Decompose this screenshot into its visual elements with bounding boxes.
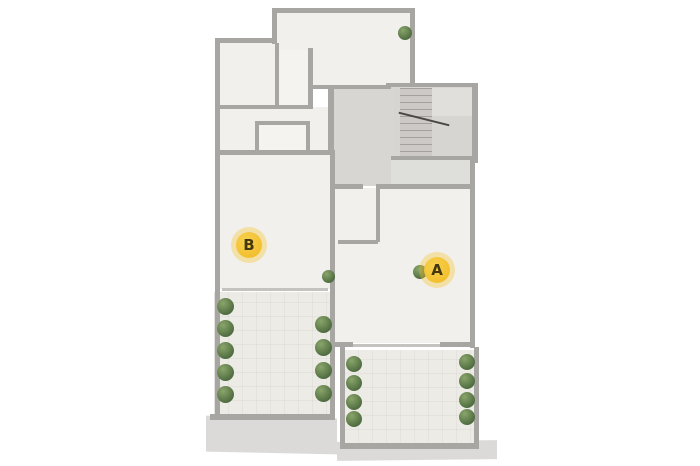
terrace-plant xyxy=(315,339,332,356)
wall xyxy=(215,38,277,43)
wall xyxy=(340,347,345,448)
sliding-glass-door xyxy=(353,344,440,347)
bathroom-b2-floor xyxy=(258,124,307,152)
wall xyxy=(215,150,335,155)
wall xyxy=(440,342,475,347)
terrace-plant xyxy=(346,375,362,391)
terrace-plant xyxy=(346,394,362,410)
stair-landing xyxy=(432,88,472,116)
wall xyxy=(308,48,313,108)
terrace-plant xyxy=(459,409,475,425)
terrace-plant xyxy=(217,342,234,359)
potted-plant xyxy=(398,26,412,40)
unit-b-label: B xyxy=(243,236,254,254)
terrace-plant xyxy=(459,373,475,389)
terrace-a-floor xyxy=(344,350,475,444)
living-a-floor xyxy=(334,188,471,343)
staircase xyxy=(394,88,472,156)
bathroom-top-floor xyxy=(278,50,309,108)
wall xyxy=(255,121,310,125)
bedroom-b-floor xyxy=(218,42,276,108)
wall xyxy=(376,184,475,189)
unit-a-entry-floor xyxy=(391,158,471,186)
wall xyxy=(215,38,220,420)
wall xyxy=(472,83,478,163)
living-b-floor xyxy=(218,154,331,289)
terrace-plant xyxy=(459,354,475,370)
terrace-plant xyxy=(217,320,234,337)
stair-flight xyxy=(400,88,432,156)
terrace-plant xyxy=(217,298,234,315)
wall xyxy=(386,83,477,87)
wall xyxy=(210,414,335,420)
floor-plan-render: B A xyxy=(0,0,700,466)
wall xyxy=(275,43,279,108)
unit-a-label: A xyxy=(431,261,443,279)
unit-a-marker[interactable]: A xyxy=(424,257,450,283)
wall xyxy=(410,8,415,87)
terrace-plant xyxy=(217,364,234,381)
terrace-plant xyxy=(217,386,234,403)
potted-plant xyxy=(322,270,335,283)
wall xyxy=(330,150,335,420)
wall xyxy=(275,105,313,109)
terrace-plant xyxy=(346,411,362,427)
wall xyxy=(333,184,363,189)
sliding-glass-door xyxy=(222,288,328,291)
wall xyxy=(272,8,415,13)
wall xyxy=(376,189,380,242)
wall xyxy=(338,240,378,244)
unit-b-marker[interactable]: B xyxy=(236,232,262,258)
terrace-plant xyxy=(459,392,475,408)
wall xyxy=(311,85,391,89)
wall xyxy=(215,105,279,109)
terrace-plant xyxy=(315,316,332,333)
terrace-plant xyxy=(315,362,332,379)
terrace-plant xyxy=(346,356,362,372)
wall xyxy=(391,156,477,160)
building-slab-left xyxy=(206,416,337,455)
wall xyxy=(340,443,479,449)
hallway-lower-floor xyxy=(333,153,391,186)
wall xyxy=(328,87,334,153)
terrace-plant xyxy=(315,385,332,402)
